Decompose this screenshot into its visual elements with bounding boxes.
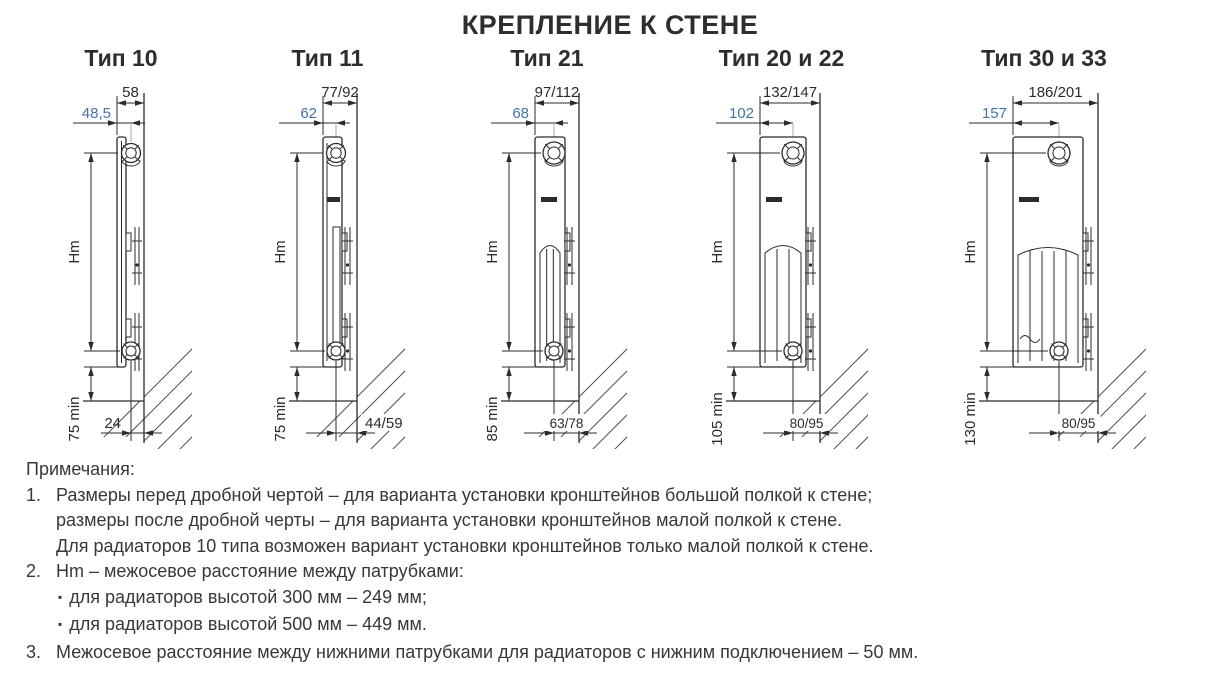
mounting-bracket <box>564 227 575 371</box>
diagram-drawing-tip-21: 97/11268Hm85 min63/78 <box>449 77 645 449</box>
note-2-bullet-2: для радиаторов высотой 500 мм – 449 мм. <box>58 612 1202 640</box>
dim-depth-total: 132/147 <box>762 84 816 101</box>
connection-valve-icon <box>122 144 141 163</box>
dim-floor-clearance: 130 min <box>962 392 979 445</box>
connection-valve-icon <box>122 342 140 360</box>
note-1: 1. Размеры перед дробной чертой – для ва… <box>26 483 1202 560</box>
notes-section: Примечания: 1. Размеры перед дробной чер… <box>0 449 1220 665</box>
dim-hm-label: Hm <box>484 240 501 263</box>
radiator-body <box>117 137 126 367</box>
diagram-tip-11: Тип 11 77/9262Hm75 min44/59 <box>235 45 421 449</box>
connection-valve-icon <box>1048 142 1070 164</box>
diagram-drawing-tip-20-22: 132/147102Hm105 min80/95 <box>674 77 890 449</box>
note-3: 3. Межосевое расстояние между нижними па… <box>26 640 1202 666</box>
dim-pipe-to-wall: 44/59 <box>365 415 403 432</box>
connection-valve-icon <box>545 342 563 360</box>
connection-valve-icon <box>327 342 345 360</box>
dim-depth-to-pipe: 48,5 <box>82 105 111 122</box>
connection-valve-icon <box>782 142 804 164</box>
diagram-title-tip-30-33: Тип 30 и 33 <box>918 45 1170 77</box>
connection-valve-icon <box>784 342 802 360</box>
dim-hm-label: Hm <box>709 240 726 263</box>
mounting-bracket <box>1083 227 1094 371</box>
dim-pipe-to-wall: 80/95 <box>1062 416 1096 431</box>
note-2-bullet-1: для радиаторов высотой 300 мм – 249 мм; <box>58 585 1202 613</box>
mounting-bracket <box>805 227 816 371</box>
connection-valve-icon <box>543 142 565 164</box>
dim-floor-clearance: 105 min <box>709 392 726 445</box>
wall-hatching <box>267 77 421 449</box>
note-2: 2. Hm – межосевое расстояние между патру… <box>26 559 1202 640</box>
diagram-title-tip-20-22: Тип 20 и 22 <box>674 45 890 77</box>
dim-depth-total: 77/92 <box>321 84 359 101</box>
dim-floor-clearance: 75 min <box>66 396 83 441</box>
connection-valve-icon <box>1050 342 1068 360</box>
dim-pipe-to-wall: 63/78 <box>550 416 584 431</box>
connection-valve-icon <box>326 144 345 163</box>
diagram-tip-20-22: Тип 20 и 22 132/147102Hm105 min80/95 <box>674 45 890 449</box>
diagram-drawing-tip-10: 5848,5Hm75 min24 <box>36 77 206 449</box>
dim-pipe-to-wall: 24 <box>104 415 121 432</box>
dim-hm-label: Hm <box>962 240 979 263</box>
dim-hm-label: Hm <box>272 240 289 263</box>
notes-heading: Примечания: <box>26 457 1202 483</box>
dim-pipe-to-wall: 80/95 <box>789 416 823 431</box>
page-title: КРЕПЛЕНИЕ К СТЕНЕ <box>0 10 1220 41</box>
diagram-row: Тип 10 5848,5Hm75 min24 Тип 11 77/9262Hm… <box>0 45 1220 449</box>
wall-hatching <box>730 77 890 449</box>
radiator-body <box>535 137 565 367</box>
diagram-drawing-tip-30-33: 186/201157Hm130 min80/95 <box>918 77 1170 449</box>
dim-floor-clearance: 75 min <box>272 396 289 441</box>
diagram-title-tip-11: Тип 11 <box>235 45 421 77</box>
note-2-line-1: Hm – межосевое расстояние между патрубка… <box>56 559 1202 585</box>
dim-depth-total: 97/112 <box>535 84 580 101</box>
dim-depth-to-pipe: 68 <box>512 105 529 122</box>
note-1-line-3: Для радиаторов 10 типа возможен вариант … <box>56 534 1202 560</box>
dim-floor-clearance: 85 min <box>484 396 501 441</box>
note-1-number: 1. <box>26 483 56 560</box>
dim-depth-to-pipe: 157 <box>982 105 1007 122</box>
diagram-tip-21: Тип 21 97/11268Hm85 min63/78 <box>449 45 645 449</box>
note-2-number: 2. <box>26 559 56 640</box>
radiator-body <box>323 137 342 367</box>
radiator-body <box>1013 137 1083 367</box>
note-3-number: 3. <box>26 640 56 666</box>
note-3-line-1: Межосевое расстояние между нижними патру… <box>56 640 1202 666</box>
dim-depth-total: 58 <box>122 84 139 101</box>
note-1-line-2: размеры после дробной черты – для вариан… <box>56 508 1202 534</box>
radiator-body <box>760 137 806 367</box>
diagram-tip-30-33: Тип 30 и 33 186/201157Hm130 min80/95 <box>918 45 1170 449</box>
note-1-line-1: Размеры перед дробной чертой – для вариа… <box>56 483 1202 509</box>
diagram-title-tip-21: Тип 21 <box>449 45 645 77</box>
dim-hm-label: Hm <box>66 240 83 263</box>
diagram-drawing-tip-11: 77/9262Hm75 min44/59 <box>235 77 421 449</box>
dim-depth-to-pipe: 102 <box>728 105 753 122</box>
diagram-tip-10: Тип 10 5848,5Hm75 min24 <box>36 45 206 449</box>
dim-depth-total: 186/201 <box>1028 84 1082 101</box>
diagram-title-tip-10: Тип 10 <box>36 45 206 77</box>
dim-depth-to-pipe: 62 <box>300 105 317 122</box>
